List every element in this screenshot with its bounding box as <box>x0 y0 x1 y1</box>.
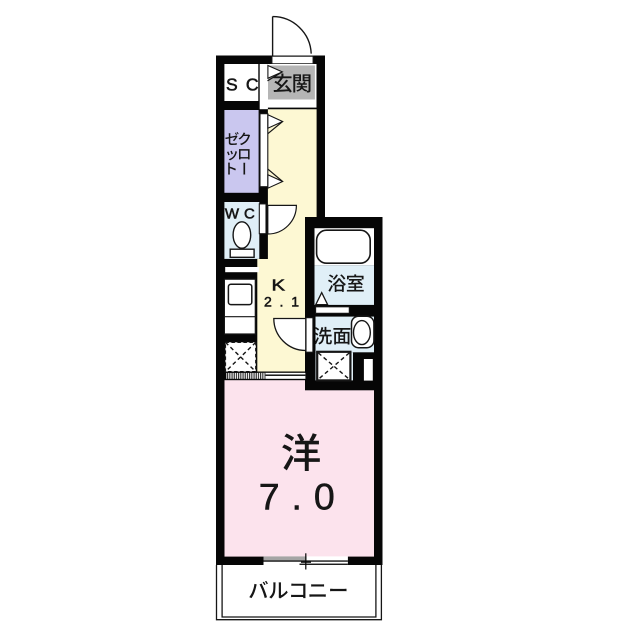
svg-text:7.0: 7.0 <box>259 475 335 517</box>
svg-text:2.1: 2.1 <box>264 294 299 310</box>
svg-text:K: K <box>272 278 286 295</box>
svg-text:C: C <box>246 74 259 94</box>
svg-text:S: S <box>226 74 238 94</box>
